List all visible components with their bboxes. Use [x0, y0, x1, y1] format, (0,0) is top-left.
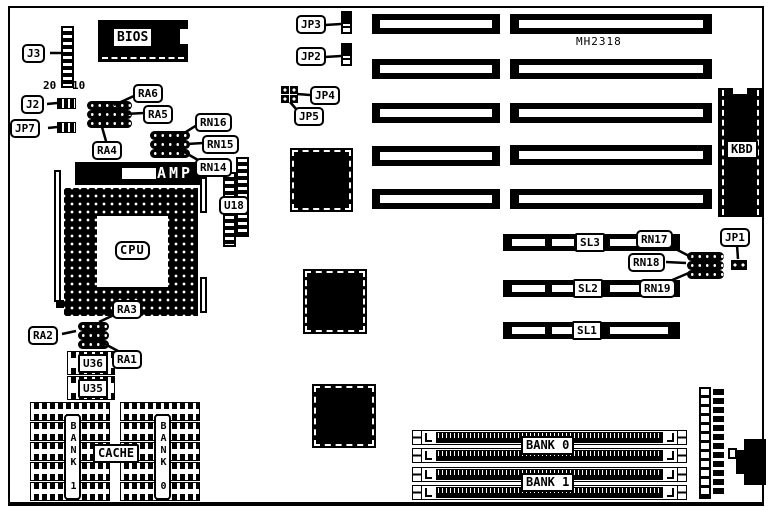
callout-u36: U36 — [78, 354, 108, 373]
bios-chip-pins — [102, 57, 184, 59]
sl2-label: SL2 — [573, 279, 603, 298]
callout-jp7: JP7 — [10, 119, 40, 138]
callout-j2: J2 — [21, 95, 44, 114]
callout-rn18: RN18 — [628, 253, 665, 272]
isa-slot — [372, 14, 500, 34]
resistor-array-ra4 — [87, 119, 132, 128]
simm-bank1-label: BANK 1 — [521, 473, 574, 492]
kbd-label: KBD — [726, 140, 758, 159]
callout-ra4: RA4 — [92, 141, 122, 160]
capacitor — [200, 277, 207, 313]
amp-brand-text: AMP — [157, 164, 193, 182]
isa-slot — [372, 189, 500, 209]
kbd-chip-notch — [733, 88, 747, 94]
resistor-array-ra3 — [78, 322, 109, 331]
callout-rn15: RN15 — [202, 135, 239, 154]
keyboard-din-notch — [728, 448, 737, 459]
resistor-array-ra2 — [78, 331, 109, 340]
callout-u18: U18 — [219, 196, 249, 215]
isa-slot — [372, 59, 500, 79]
resistor-array-rn15 — [150, 140, 190, 149]
bios-chip-notch — [180, 29, 188, 44]
jumper-jp3 — [341, 11, 352, 34]
isa-slot — [372, 103, 500, 123]
sl1-label: SL1 — [572, 321, 602, 340]
resistor-array-rn16 — [150, 131, 190, 140]
zif-socket-bar: AMP — [75, 162, 200, 185]
sl3-label: SL3 — [575, 233, 605, 252]
bios-label: BIOS — [112, 27, 153, 48]
isa-slot — [372, 146, 500, 166]
capacitor — [200, 177, 207, 213]
callout-jp5: JP5 — [294, 107, 324, 126]
isa-slot — [510, 103, 712, 123]
callout-ra1: RA1 — [112, 350, 142, 369]
pin-number-10: 10 — [72, 79, 85, 92]
callout-jp2: JP2 — [296, 47, 326, 66]
resistor-array-rn19 — [687, 270, 724, 279]
motherboard-diagram: J3 20 10 J2 JP7 BIOS RA6 RA5 RA4 RN16 RN… — [0, 0, 775, 516]
isa-slot — [510, 189, 712, 209]
pin-number-20: 20 — [43, 79, 56, 92]
jumper-jp2 — [341, 43, 352, 66]
callout-ra2: RA2 — [28, 326, 58, 345]
qfp-chip — [303, 269, 367, 334]
qfp-chip — [290, 148, 353, 212]
callout-ra5: RA5 — [143, 105, 173, 124]
cache-label: CACHE — [93, 444, 139, 463]
power-connector — [699, 387, 724, 499]
isa-slot — [510, 145, 712, 165]
callout-jp1: JP1 — [720, 228, 750, 247]
power-connector-pins-left — [699, 387, 711, 499]
resistor-array-rn17 — [687, 252, 724, 261]
cache-bank1-label: BANK 1 — [64, 414, 81, 500]
keyboard-din-neck — [736, 450, 745, 474]
simm-bank0-label: BANK 0 — [521, 436, 574, 455]
isa-slot — [510, 14, 712, 34]
cpu-label: CPU — [115, 241, 150, 260]
callout-u35: U35 — [78, 379, 108, 398]
resistor-array-rn14 — [150, 149, 190, 158]
board-model-text: MH2318 — [576, 35, 622, 48]
callout-j3: J3 — [22, 44, 45, 63]
qfp-chip — [312, 384, 376, 448]
callout-jp4: JP4 — [310, 86, 340, 105]
power-connector-pins-right — [713, 389, 724, 497]
callout-rn14: RN14 — [195, 158, 232, 177]
callout-rn19: RN19 — [639, 279, 676, 298]
jumper-jp7 — [57, 122, 76, 133]
resistor-array-ra5 — [87, 110, 132, 119]
resistor-array-ra6 — [87, 101, 132, 110]
callout-ra6: RA6 — [133, 84, 163, 103]
resistor-array-ra1 — [78, 340, 109, 349]
jumper-j2 — [57, 98, 76, 109]
zif-bar-window — [122, 168, 156, 179]
isa-slot — [510, 59, 712, 79]
callout-ra3: RA3 — [112, 300, 142, 319]
callout-jp3: JP3 — [296, 15, 326, 34]
jumper-block-jp4-jp5 — [281, 86, 298, 103]
callout-rn17: RN17 — [636, 230, 673, 249]
keyboard-din-connector — [744, 439, 766, 485]
resistor-array-rn18 — [687, 261, 724, 270]
jumper-jp1 — [731, 260, 747, 270]
cache-bank0-label: BANK 0 — [154, 414, 171, 500]
callout-rn16: RN16 — [195, 113, 232, 132]
zif-lever — [54, 170, 61, 302]
